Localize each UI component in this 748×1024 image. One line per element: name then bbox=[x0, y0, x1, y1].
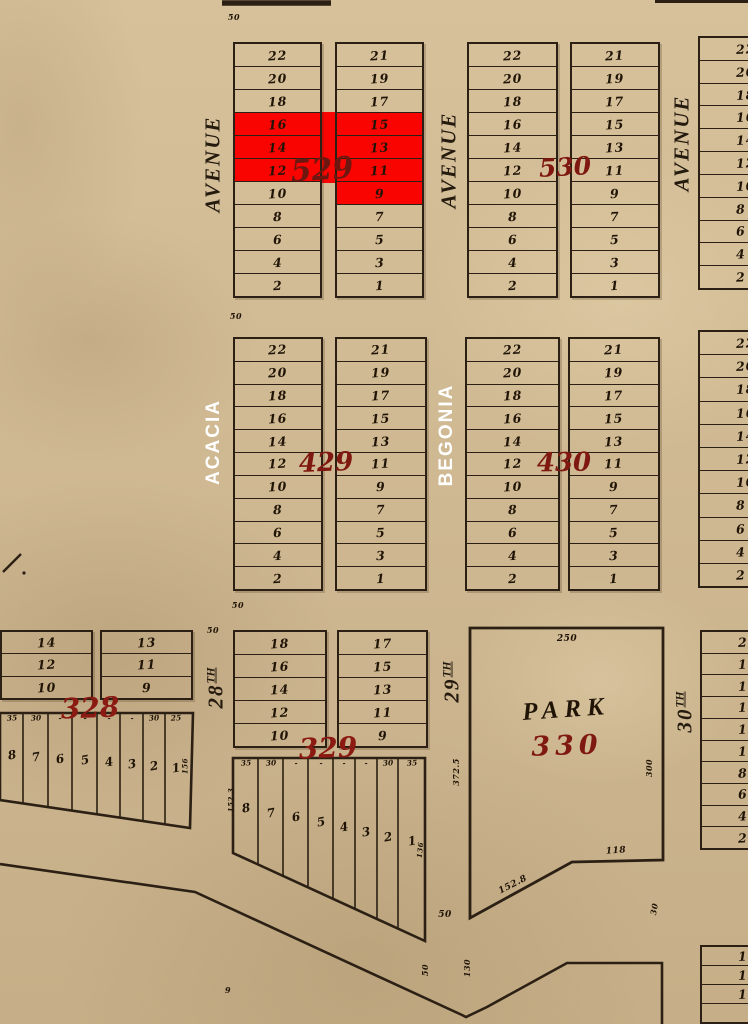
lot-cell[interactable]: 7 bbox=[337, 499, 425, 522]
lot-cell[interactable]: 20 bbox=[700, 355, 748, 378]
lot-cell[interactable]: 6 bbox=[700, 221, 748, 244]
lot-width-dimension: 35 bbox=[240, 758, 251, 768]
lot-cell[interactable]: 2 bbox=[700, 564, 748, 586]
lot-number: 16 bbox=[267, 116, 287, 132]
lot-number: 3 bbox=[376, 547, 386, 562]
lot-number: 1 bbox=[609, 570, 619, 585]
lot-number: 18 bbox=[738, 656, 748, 672]
lot-number: 8 bbox=[507, 208, 517, 223]
dimension-label: 50 bbox=[228, 12, 240, 22]
lot-number: 18 bbox=[270, 635, 290, 651]
lot-number: 15 bbox=[372, 658, 392, 674]
lot-cell[interactable]: 16 bbox=[235, 113, 320, 136]
lot-cell[interactable]: 5 bbox=[570, 522, 658, 545]
lot-number: 8 bbox=[240, 800, 251, 815]
lot-cell[interactable]: 19 bbox=[570, 362, 658, 385]
lot-cell[interactable]: 11 bbox=[339, 701, 426, 724]
lot-number: 1 bbox=[406, 833, 417, 848]
lot-cell[interactable]: 22 bbox=[700, 38, 748, 61]
lot-number: 20 bbox=[736, 64, 748, 80]
lot-number: 22 bbox=[736, 41, 748, 57]
street-label-28th: 28TH bbox=[204, 667, 229, 708]
partial-block-se: 2018161412108642 bbox=[700, 630, 748, 850]
map-canvas: AVENUE AVENUE AVENUE ACACIA BEGONIA 28TH… bbox=[0, 0, 748, 1024]
lot-number: 4 bbox=[736, 246, 746, 261]
lot-number: 2 bbox=[273, 570, 283, 585]
lot-number: 1 bbox=[610, 277, 620, 292]
block-328-lower-outline bbox=[0, 713, 193, 828]
lot-number: 4 bbox=[507, 547, 517, 562]
lot-number: 20 bbox=[738, 634, 748, 650]
street-label-avenue-n: AVENUE bbox=[437, 112, 462, 209]
lot-cell[interactable]: 14 bbox=[700, 129, 748, 152]
park-dimension-top: 250 bbox=[557, 634, 577, 644]
lot-cell[interactable]: 1 bbox=[570, 567, 658, 589]
street-30-suffix: TH bbox=[675, 691, 687, 707]
lot-cell[interactable]: 5 bbox=[572, 228, 658, 251]
block-328-upper-right-column: 13119 bbox=[100, 630, 193, 700]
lot-cell[interactable]: 4 bbox=[700, 541, 748, 564]
lot-number: 14 bbox=[267, 139, 287, 155]
lot-number: 18 bbox=[268, 388, 288, 404]
lot-number: 7 bbox=[609, 502, 619, 517]
street-28-number: 28 bbox=[204, 684, 228, 709]
lot-number: 2 bbox=[736, 269, 746, 284]
lot-number: 2 bbox=[736, 567, 746, 582]
lot-number: 7 bbox=[376, 502, 386, 517]
lot-number: 7 bbox=[374, 208, 384, 223]
lot-number: 16 bbox=[502, 116, 522, 132]
lot-cell[interactable]: 17 bbox=[337, 90, 422, 113]
lot-number: 14 bbox=[268, 433, 288, 449]
lot-width-dimension: 35 bbox=[406, 758, 417, 768]
lot-number: 12 bbox=[738, 721, 748, 737]
lot-cell[interactable]: 20 bbox=[235, 362, 321, 385]
lot-cell[interactable]: 2 bbox=[235, 274, 320, 296]
dimension-label: 9 bbox=[225, 985, 231, 995]
lot-cell[interactable] bbox=[702, 1004, 748, 1022]
dimension-label: 130 bbox=[462, 959, 472, 977]
lot-cell[interactable]: 21 bbox=[572, 44, 658, 67]
lot-cell[interactable]: 1 bbox=[337, 274, 422, 296]
block-number-429: 429 bbox=[298, 447, 353, 479]
lot-number: 4 bbox=[103, 754, 114, 769]
lot-cell[interactable]: 14 bbox=[702, 697, 748, 719]
lot-number: 8 bbox=[273, 502, 283, 517]
lot-cell[interactable]: 8 bbox=[700, 494, 748, 517]
lot-cell[interactable]: 8 bbox=[702, 762, 748, 784]
lot-number: 15 bbox=[371, 410, 391, 426]
lot-cell[interactable]: 6 bbox=[467, 522, 558, 545]
lot-cell[interactable]: 17 bbox=[337, 385, 425, 408]
lot-cell[interactable]: 10 bbox=[702, 985, 748, 1004]
lot-cell[interactable]: 7 bbox=[337, 205, 422, 228]
lot-cell[interactable]: 18 bbox=[700, 84, 748, 107]
lot-cell[interactable]: 5 bbox=[337, 522, 425, 545]
lot-number: 2 bbox=[507, 570, 517, 585]
lot-number: 10 bbox=[736, 178, 748, 194]
lot-number: 6 bbox=[507, 231, 517, 246]
lot-number: 22 bbox=[502, 47, 522, 63]
lot-number: 10 bbox=[738, 743, 748, 759]
dimension-label: 50 bbox=[438, 910, 452, 920]
lot-number: 15 bbox=[369, 116, 389, 132]
lot-cell[interactable]: 4 bbox=[235, 251, 320, 274]
lot-width-dimension: 30 bbox=[265, 758, 276, 768]
lot-number: 5 bbox=[376, 525, 386, 540]
lot-number: 11 bbox=[605, 162, 625, 178]
dimension-label: 50 bbox=[207, 625, 219, 635]
lot-number: 8 bbox=[736, 201, 746, 216]
lot-width-dimension: - bbox=[58, 713, 62, 722]
lot-cell[interactable]: 17 bbox=[570, 385, 658, 408]
lot-cell[interactable]: 16 bbox=[700, 106, 748, 129]
partial-block-ne: 222018161412108642 bbox=[698, 36, 748, 290]
lot-cell[interactable]: 20 bbox=[700, 61, 748, 84]
lot-cell[interactable]: 12 bbox=[235, 701, 325, 724]
lot-cell[interactable]: 21 bbox=[337, 339, 425, 362]
lot-cell[interactable]: 8 bbox=[700, 198, 748, 221]
lot-cell[interactable]: 18 bbox=[235, 90, 320, 113]
dimension-label: 50 bbox=[230, 311, 242, 321]
lot-cell[interactable]: 10 bbox=[702, 741, 748, 763]
lot-number: 1 bbox=[376, 570, 386, 585]
lot-cell[interactable]: 19 bbox=[337, 362, 425, 385]
lot-cell[interactable]: 10 bbox=[700, 471, 748, 494]
lot-number: 4 bbox=[507, 254, 517, 269]
lot-cell[interactable]: 12 bbox=[702, 719, 748, 741]
lot-number: 8 bbox=[507, 502, 517, 517]
lot-cell[interactable]: 22 bbox=[469, 44, 556, 67]
lot-cell[interactable]: 13 bbox=[339, 678, 426, 701]
block-number-530: 530 bbox=[538, 151, 592, 183]
lot-number: 12 bbox=[736, 155, 748, 171]
lot-number: 19 bbox=[604, 365, 624, 381]
lot-cell[interactable]: 6 bbox=[235, 228, 320, 251]
lot-number: 3 bbox=[126, 756, 137, 771]
lot-cell[interactable]: 16 bbox=[235, 655, 325, 678]
lot-number: 6 bbox=[736, 521, 746, 536]
lot-number: 12 bbox=[502, 162, 522, 178]
lot-width-dimension: - bbox=[342, 758, 346, 767]
lot-cell[interactable]: 8 bbox=[235, 205, 320, 228]
lot-cell[interactable]: 6 bbox=[469, 228, 556, 251]
lot-number: 6 bbox=[736, 224, 746, 239]
lot-cell[interactable]: 2 bbox=[469, 274, 556, 296]
lot-cell[interactable]: 9 bbox=[337, 476, 425, 499]
lot-number: 13 bbox=[136, 635, 156, 651]
lot-number: 14 bbox=[36, 635, 56, 651]
lot-number: 22 bbox=[736, 335, 748, 351]
partial-block-e: 222018161412108642 bbox=[698, 330, 748, 588]
lot-number: 4 bbox=[736, 544, 746, 559]
street-label-avenue-ne: AVENUE bbox=[670, 95, 695, 192]
lot-number: 6 bbox=[738, 787, 748, 802]
lot-width-dimension: 30 bbox=[30, 713, 41, 723]
park-block-outline bbox=[470, 628, 663, 918]
lot-number: 5 bbox=[610, 231, 620, 246]
lot-cell[interactable]: 12 bbox=[700, 448, 748, 471]
lot-cell[interactable]: 3 bbox=[337, 544, 425, 567]
park-dimension-right: 300 bbox=[644, 759, 654, 777]
lot-number: 6 bbox=[273, 525, 283, 540]
lot-number: 7 bbox=[265, 805, 276, 820]
lot-cell[interactable]: 18 bbox=[235, 632, 325, 655]
lot-number: 5 bbox=[374, 231, 384, 246]
lot-cell[interactable]: 3 bbox=[570, 544, 658, 567]
lot-number: 9 bbox=[376, 479, 386, 494]
lot-cell[interactable]: 19 bbox=[572, 67, 658, 90]
lot-number: 2 bbox=[382, 829, 393, 844]
lot-number: 12 bbox=[738, 967, 748, 983]
lot-number: 11 bbox=[371, 456, 391, 472]
block-number-330: 330 bbox=[531, 729, 603, 762]
lot-cell[interactable]: 10 bbox=[469, 182, 556, 205]
lot-cell[interactable]: 6 bbox=[700, 518, 748, 541]
lot-cell[interactable]: 9 bbox=[572, 182, 658, 205]
lot-cell[interactable]: 16 bbox=[467, 407, 558, 430]
lot-width-dimension: - bbox=[130, 713, 134, 722]
lot-cell[interactable]: 16 bbox=[235, 407, 321, 430]
lot-number: 19 bbox=[605, 70, 625, 86]
lot-number: 15 bbox=[604, 410, 624, 426]
lot-number: 9 bbox=[609, 479, 619, 494]
street-label-acacia: ACACIA bbox=[203, 399, 225, 485]
lot-cell[interactable]: 18 bbox=[469, 90, 556, 113]
lot-number: 20 bbox=[502, 365, 522, 381]
lot-number: 11 bbox=[136, 657, 156, 673]
lot-cell[interactable]: 15 bbox=[339, 655, 426, 678]
lot-number: 16 bbox=[736, 405, 748, 421]
lot-cell[interactable]: 4 bbox=[235, 544, 321, 567]
lot-cell[interactable]: 14 bbox=[2, 632, 91, 654]
block-number-328: 328 bbox=[60, 690, 120, 725]
lot-number: 14 bbox=[736, 428, 748, 444]
lot-number: 8 bbox=[272, 208, 282, 223]
lot-number: 10 bbox=[270, 727, 290, 743]
lot-cell[interactable]: 4 bbox=[700, 243, 748, 266]
lot-number: 10 bbox=[736, 474, 748, 490]
lot-number: 13 bbox=[372, 681, 392, 697]
lot-cell[interactable]: 3 bbox=[337, 251, 422, 274]
lot-cell[interactable]: 14 bbox=[700, 425, 748, 448]
lot-width-dimension: 25 bbox=[171, 713, 182, 723]
lot-number: 16 bbox=[502, 410, 522, 426]
block-number-430: 430 bbox=[537, 448, 592, 479]
lot-number: 20 bbox=[267, 70, 287, 86]
lot-number: 14 bbox=[502, 139, 522, 155]
lot-cell[interactable]: 7 bbox=[572, 205, 658, 228]
lot-number: 21 bbox=[371, 342, 391, 358]
lot-width-dimension: - bbox=[319, 758, 323, 767]
lot-cell[interactable]: 15 bbox=[570, 407, 658, 430]
lot-width-dimension: - bbox=[294, 758, 298, 767]
lot-cell[interactable]: 18 bbox=[467, 385, 558, 408]
lot-cell[interactable]: 10 bbox=[467, 476, 558, 499]
lot-number: 21 bbox=[605, 47, 625, 63]
lot-number: 20 bbox=[736, 358, 748, 374]
lot-number: 10 bbox=[36, 679, 56, 695]
lot-number: 18 bbox=[502, 93, 522, 109]
street-label-begonia: BEGONIA bbox=[436, 384, 458, 487]
lot-cell[interactable]: 7 bbox=[570, 499, 658, 522]
lot-cell[interactable]: 9 bbox=[570, 476, 658, 499]
lot-cell[interactable]: 22 bbox=[467, 339, 558, 362]
lot-number: 10 bbox=[502, 479, 522, 495]
lot-cell[interactable]: 2 bbox=[235, 567, 321, 589]
lot-width-dimension: 30 bbox=[382, 758, 393, 768]
lot-cell[interactable]: 20 bbox=[702, 632, 748, 654]
lot-number: 22 bbox=[267, 47, 287, 63]
lot-number: 14 bbox=[738, 699, 748, 715]
street-28-suffix: TH bbox=[206, 667, 218, 683]
lot-number: 14 bbox=[738, 948, 748, 964]
street-30-number: 30 bbox=[673, 708, 697, 733]
lot-number: 9 bbox=[610, 185, 620, 200]
lot-cell[interactable]: 4 bbox=[467, 544, 558, 567]
lot-cell[interactable]: 12 bbox=[700, 152, 748, 175]
street-29-number: 29 bbox=[440, 678, 464, 703]
lot-number: 5 bbox=[609, 525, 619, 540]
lot-number: 13 bbox=[604, 433, 624, 449]
lot-cell[interactable]: 4 bbox=[469, 251, 556, 274]
block-329-lower-outline bbox=[233, 758, 425, 941]
park-dimension-left: 372.5 bbox=[451, 758, 461, 786]
lot-cell[interactable]: 10 bbox=[235, 476, 321, 499]
lot-cell[interactable]: 15 bbox=[337, 113, 422, 136]
lot-number: 8 bbox=[6, 747, 17, 762]
lot-cell[interactable]: 1 bbox=[337, 567, 425, 589]
lot-cell[interactable]: 15 bbox=[337, 407, 425, 430]
lot-number: 7 bbox=[30, 749, 41, 764]
lot-cell[interactable]: 8 bbox=[235, 499, 321, 522]
lot-number: 2 bbox=[738, 830, 748, 845]
block-329-upper-left-column: 1816141210 bbox=[233, 630, 327, 748]
lot-cell[interactable]: 15 bbox=[572, 113, 658, 136]
lot-cell[interactable]: 6 bbox=[235, 522, 321, 545]
street-label-avenue-nw: AVENUE bbox=[201, 116, 226, 213]
lot-number: 13 bbox=[369, 139, 389, 155]
block-328-upper-left-column: 141210 bbox=[0, 630, 93, 700]
lot-cell[interactable]: 2 bbox=[467, 567, 558, 589]
lot-number: 18 bbox=[267, 93, 287, 109]
lot-cell[interactable]: 2 bbox=[702, 827, 748, 848]
lot-number: 14 bbox=[502, 433, 522, 449]
lot-number: 12 bbox=[736, 451, 748, 467]
lot-cell[interactable]: 16 bbox=[702, 675, 748, 697]
lot-cell[interactable]: 5 bbox=[337, 228, 422, 251]
lot-cell[interactable]: 17 bbox=[339, 632, 426, 655]
lot-number: 15 bbox=[605, 116, 625, 132]
lot-number: 17 bbox=[369, 93, 389, 109]
lot-cell[interactable]: 3 bbox=[572, 251, 658, 274]
lot-cell[interactable]: 13 bbox=[102, 632, 191, 654]
lot-cell[interactable]: 20 bbox=[235, 67, 320, 90]
lot-cell[interactable]: 21 bbox=[337, 44, 422, 67]
lot-number: 16 bbox=[268, 410, 288, 426]
lot-cell[interactable]: 22 bbox=[235, 339, 321, 362]
lot-number: 13 bbox=[371, 433, 391, 449]
lot-number: 7 bbox=[610, 208, 620, 223]
lot-cell[interactable]: 17 bbox=[572, 90, 658, 113]
lot-cell[interactable]: 20 bbox=[469, 67, 556, 90]
lot-cell[interactable]: 19 bbox=[337, 67, 422, 90]
street-29-suffix: TH bbox=[442, 661, 454, 677]
lot-number: 12 bbox=[502, 456, 522, 472]
lot-number: 5 bbox=[79, 752, 90, 767]
lot-number: 9 bbox=[377, 727, 387, 742]
lot-number: 17 bbox=[372, 635, 392, 651]
edge-mark bbox=[3, 554, 26, 575]
dimension-label: 50 bbox=[420, 964, 430, 976]
lot-cell[interactable]: 21 bbox=[570, 339, 658, 362]
lot-number: 20 bbox=[502, 70, 522, 86]
lot-number: 3 bbox=[609, 547, 619, 562]
lot-cell[interactable]: 16 bbox=[700, 402, 748, 425]
lot-cell[interactable]: 18 bbox=[702, 654, 748, 676]
lot-cell[interactable]: 12 bbox=[2, 654, 91, 676]
lot-number: 6 bbox=[290, 809, 301, 824]
lot-cell[interactable]: 16 bbox=[469, 113, 556, 136]
lot-cell[interactable]: 4 bbox=[702, 806, 748, 828]
lot-number: 16 bbox=[738, 678, 748, 694]
lot-number: 12 bbox=[267, 162, 287, 178]
lot-number: 18 bbox=[736, 381, 748, 397]
lot-number: 6 bbox=[507, 525, 517, 540]
lot-cell[interactable]: 11 bbox=[102, 654, 191, 676]
lot-number: 9 bbox=[374, 185, 384, 200]
lot-cell[interactable]: 8 bbox=[469, 205, 556, 228]
lot-number: 10 bbox=[502, 185, 522, 201]
lot-cell[interactable]: 22 bbox=[235, 44, 320, 67]
lot-number: 12 bbox=[36, 657, 56, 673]
lot-number: 22 bbox=[268, 342, 288, 358]
lot-number: 18 bbox=[502, 388, 522, 404]
lot-number: 14 bbox=[270, 681, 290, 697]
lot-number: 8 bbox=[738, 765, 748, 780]
lot-number: 11 bbox=[369, 162, 389, 178]
lot-number: 11 bbox=[604, 456, 624, 472]
lot-number: 8 bbox=[736, 498, 746, 513]
lot-cell[interactable]: 12 bbox=[702, 966, 748, 985]
lot-number: 14 bbox=[736, 132, 748, 148]
lot-width-dimension: - bbox=[364, 758, 368, 767]
lot-number: 3 bbox=[610, 254, 620, 269]
lot-width-dimension: 30 bbox=[149, 713, 160, 723]
block-number-329: 329 bbox=[298, 730, 358, 765]
lot-cell[interactable]: 6 bbox=[702, 784, 748, 806]
lot-cell[interactable]: 14 bbox=[235, 678, 325, 701]
lot-cell[interactable]: 8 bbox=[467, 499, 558, 522]
lot-cell[interactable]: 14 bbox=[702, 947, 748, 966]
lot-cell[interactable]: 18 bbox=[700, 378, 748, 401]
lot-cell[interactable]: 2 bbox=[700, 266, 748, 288]
lot-cell[interactable]: 10 bbox=[700, 175, 748, 198]
lot-cell[interactable]: 20 bbox=[467, 362, 558, 385]
lot-number: 18 bbox=[736, 87, 748, 103]
lot-number: 16 bbox=[736, 109, 748, 125]
lot-number: 2 bbox=[272, 277, 282, 292]
block-329-left-edge-dimension: 152.3 bbox=[227, 788, 236, 812]
lot-cell[interactable]: 18 bbox=[235, 385, 321, 408]
lot-cell[interactable]: 1 bbox=[572, 274, 658, 296]
street-boundary-line bbox=[0, 864, 662, 1024]
lot-cell[interactable]: 22 bbox=[700, 332, 748, 355]
lot-number: 22 bbox=[502, 342, 522, 358]
lot-number: 10 bbox=[268, 479, 288, 495]
lot-width-dimension: - bbox=[83, 713, 87, 722]
lot-number: 9 bbox=[141, 680, 151, 695]
